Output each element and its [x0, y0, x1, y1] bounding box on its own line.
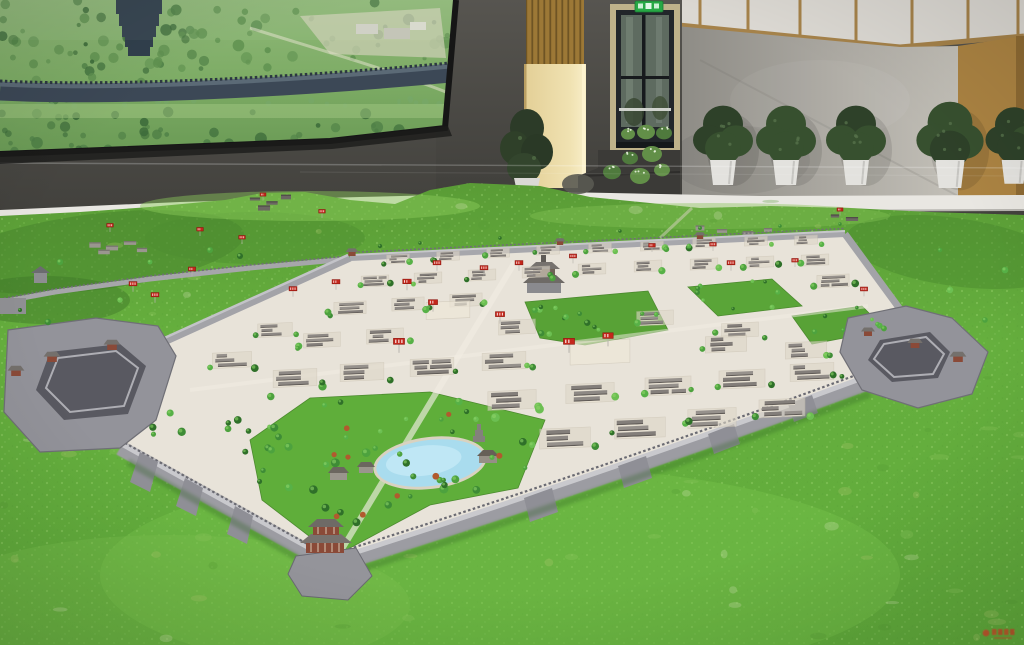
exhibition-photo: [0, 0, 1024, 645]
vignette: [0, 0, 1024, 645]
scene-canvas: [0, 0, 1024, 645]
